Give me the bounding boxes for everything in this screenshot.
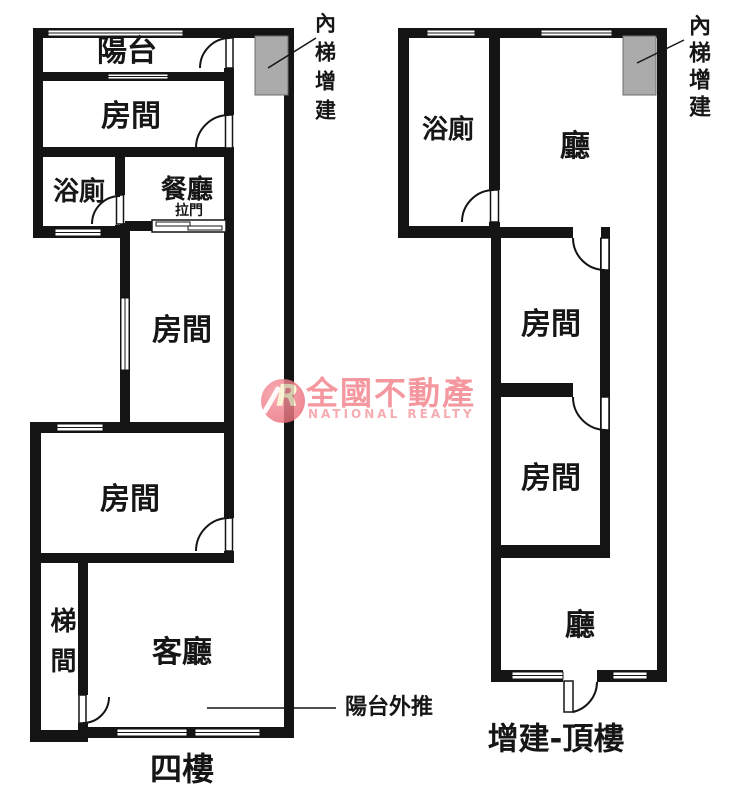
room-label-living: 客廳 (152, 638, 212, 668)
floor4-doors (79, 38, 233, 723)
room-label-room-lower: 房間 (100, 485, 160, 515)
rooftop-inner-stairs-area (623, 36, 684, 95)
room-label-room-upper-roof: 房間 (521, 310, 581, 340)
room-label-hall-lower: 廳 (565, 611, 595, 641)
room-label-room-middle: 房間 (152, 316, 212, 346)
watermark-logo-letter: R (276, 382, 299, 412)
room-label-dining: 餐廳 (161, 177, 213, 203)
annotation-inner-stairs-roof: 內梯增建 (686, 14, 708, 122)
room-label-bathroom-4f: 浴廁 (53, 179, 105, 205)
floor-title-4f: 四樓 (150, 753, 214, 785)
floor-title-rooftop: 增建-頂樓 (488, 725, 625, 756)
watermark-brand-en: NATIONAL REALTY (308, 408, 475, 420)
floorplan-page: R 全國不動產 NATIONAL REALTY 陽台 房間 浴廁 餐廳 拉門 房… (0, 0, 731, 800)
annotation-inner-stairs-4f: 內梯增建 (314, 12, 335, 128)
floor4-inner-stairs-area (255, 36, 316, 95)
watermark-brand-text: 全國不動產 (306, 377, 476, 409)
label-sliding-door: 拉門 (175, 204, 203, 218)
floor4-sliding-door (152, 220, 226, 232)
room-label-hall-upper: 廳 (560, 132, 590, 162)
annotation-balcony-pushed-out: 陽台外推 (345, 697, 433, 719)
room-label-stairwell: 梯間 (48, 607, 74, 687)
room-label-room-lower-roof: 房間 (521, 464, 581, 494)
room-label-bathroom-roof: 浴廁 (422, 117, 474, 143)
room-label-room-top: 房間 (101, 102, 161, 132)
room-label-balcony: 陽台 (97, 37, 157, 67)
watermark-logo: R (261, 379, 305, 423)
